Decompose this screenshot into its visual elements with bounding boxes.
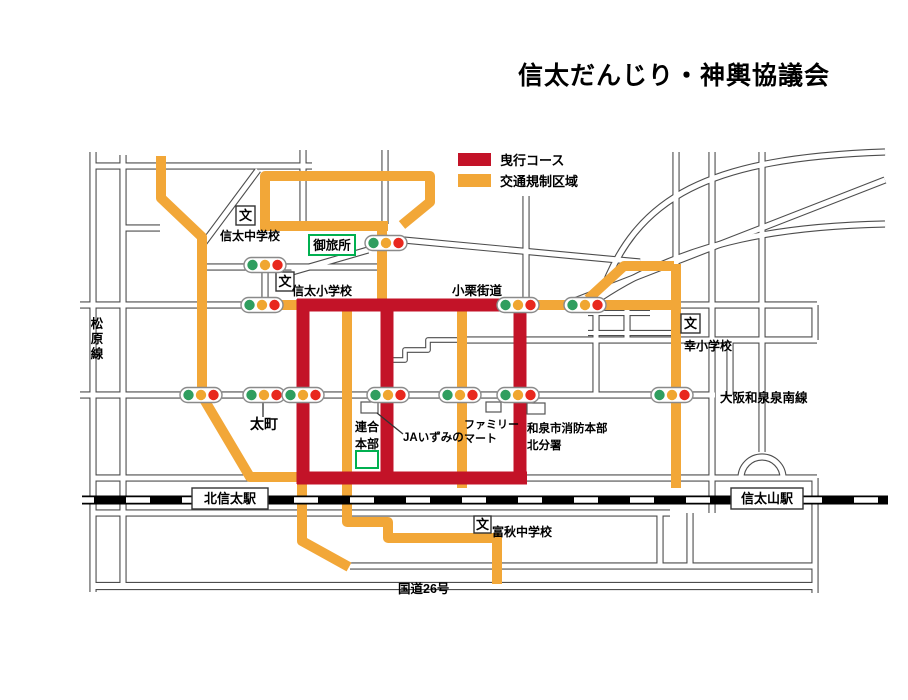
- traffic-light-lamp: [271, 390, 281, 400]
- map-label: マート: [464, 432, 497, 445]
- traffic-light-lamp: [679, 390, 689, 400]
- traffic-light-lamp: [592, 300, 602, 310]
- street: [390, 340, 457, 360]
- traffic-light-lamp: [393, 238, 403, 248]
- traffic-light-lamp: [259, 390, 269, 400]
- traffic-light-lamp: [257, 300, 267, 310]
- traffic-light-lamp: [513, 390, 523, 400]
- school-label: 富秋中学校: [492, 524, 553, 539]
- traffic-light-lamp: [467, 390, 477, 400]
- traffic-light-lamp: [580, 300, 590, 310]
- traffic-light-lamp: [654, 390, 664, 400]
- traffic-light-lamp: [370, 390, 380, 400]
- traffic-light-lamp: [525, 390, 535, 400]
- traffic-light-lamp: [272, 260, 282, 270]
- traffic-light-lamp: [381, 238, 391, 248]
- traffic-light-lamp: [285, 390, 295, 400]
- map-label: 太町: [250, 416, 278, 432]
- map-label: 北分署: [527, 438, 562, 452]
- station-name: 北信太駅: [204, 491, 257, 506]
- street: [572, 180, 885, 302]
- school-label: 幸小学校: [684, 338, 733, 353]
- traffic-light-lamp: [500, 390, 510, 400]
- street: [382, 238, 640, 262]
- map-label: 和泉市消防本部: [527, 421, 608, 435]
- traffic-light-lamp: [244, 300, 254, 310]
- map-label-vertical: 松原線: [91, 316, 104, 361]
- traffic-light-lamp: [442, 390, 452, 400]
- traffic-light-lamp: [383, 390, 393, 400]
- traffic-light-lamp: [247, 260, 257, 270]
- regulated-route: [302, 481, 349, 567]
- traffic-light-lamp: [567, 300, 577, 310]
- map-label: ファミリー: [464, 418, 519, 431]
- map-label: 国道26号: [398, 581, 449, 596]
- traffic-light-lamp: [260, 260, 270, 270]
- school-label: 信太中学校: [220, 228, 281, 243]
- map-label: 大阪和泉泉南線: [720, 390, 808, 405]
- building-marker: [527, 403, 545, 414]
- landmark-label: 御旅所: [312, 238, 351, 253]
- building-marker: [486, 402, 501, 412]
- map-page: 信太だんじり・神輿協議会 曳行コース交通規制区域 北信太駅信太山駅御旅所文信太中…: [0, 0, 908, 700]
- traffic-light-lamp: [500, 300, 510, 310]
- traffic-light-lamp: [196, 390, 206, 400]
- traffic-light-lamp: [513, 300, 523, 310]
- map-label: 連合: [355, 419, 380, 434]
- traffic-light-lamp: [246, 390, 256, 400]
- traffic-light-lamp: [269, 300, 279, 310]
- traffic-light-lamp: [455, 390, 465, 400]
- school-symbol: 文: [278, 274, 292, 289]
- school-symbol: 文: [684, 316, 698, 331]
- map-label: 小栗街道: [451, 283, 503, 298]
- traffic-light-lamp: [298, 390, 308, 400]
- traffic-light-lamp: [208, 390, 218, 400]
- school-label: 信太小学校: [292, 283, 353, 298]
- traffic-light-lamp: [667, 390, 677, 400]
- landmark-green-box: [356, 451, 378, 468]
- traffic-light-lamp: [395, 390, 405, 400]
- station-name: 信太山駅: [741, 491, 794, 506]
- school-symbol: 文: [476, 517, 490, 532]
- map-label: 本部: [355, 436, 379, 451]
- traffic-light-lamp: [525, 300, 535, 310]
- building-marker: [361, 402, 378, 413]
- route-map: 北信太駅信太山駅御旅所文信太中学校文信太小学校文幸小学校文富秋中学校小栗街道大阪…: [0, 0, 908, 700]
- map-label: JAいずみの: [403, 430, 464, 444]
- traffic-light-lamp: [183, 390, 193, 400]
- traffic-light-lamp: [368, 238, 378, 248]
- school-symbol: 文: [239, 208, 253, 223]
- traffic-light-lamp: [310, 390, 320, 400]
